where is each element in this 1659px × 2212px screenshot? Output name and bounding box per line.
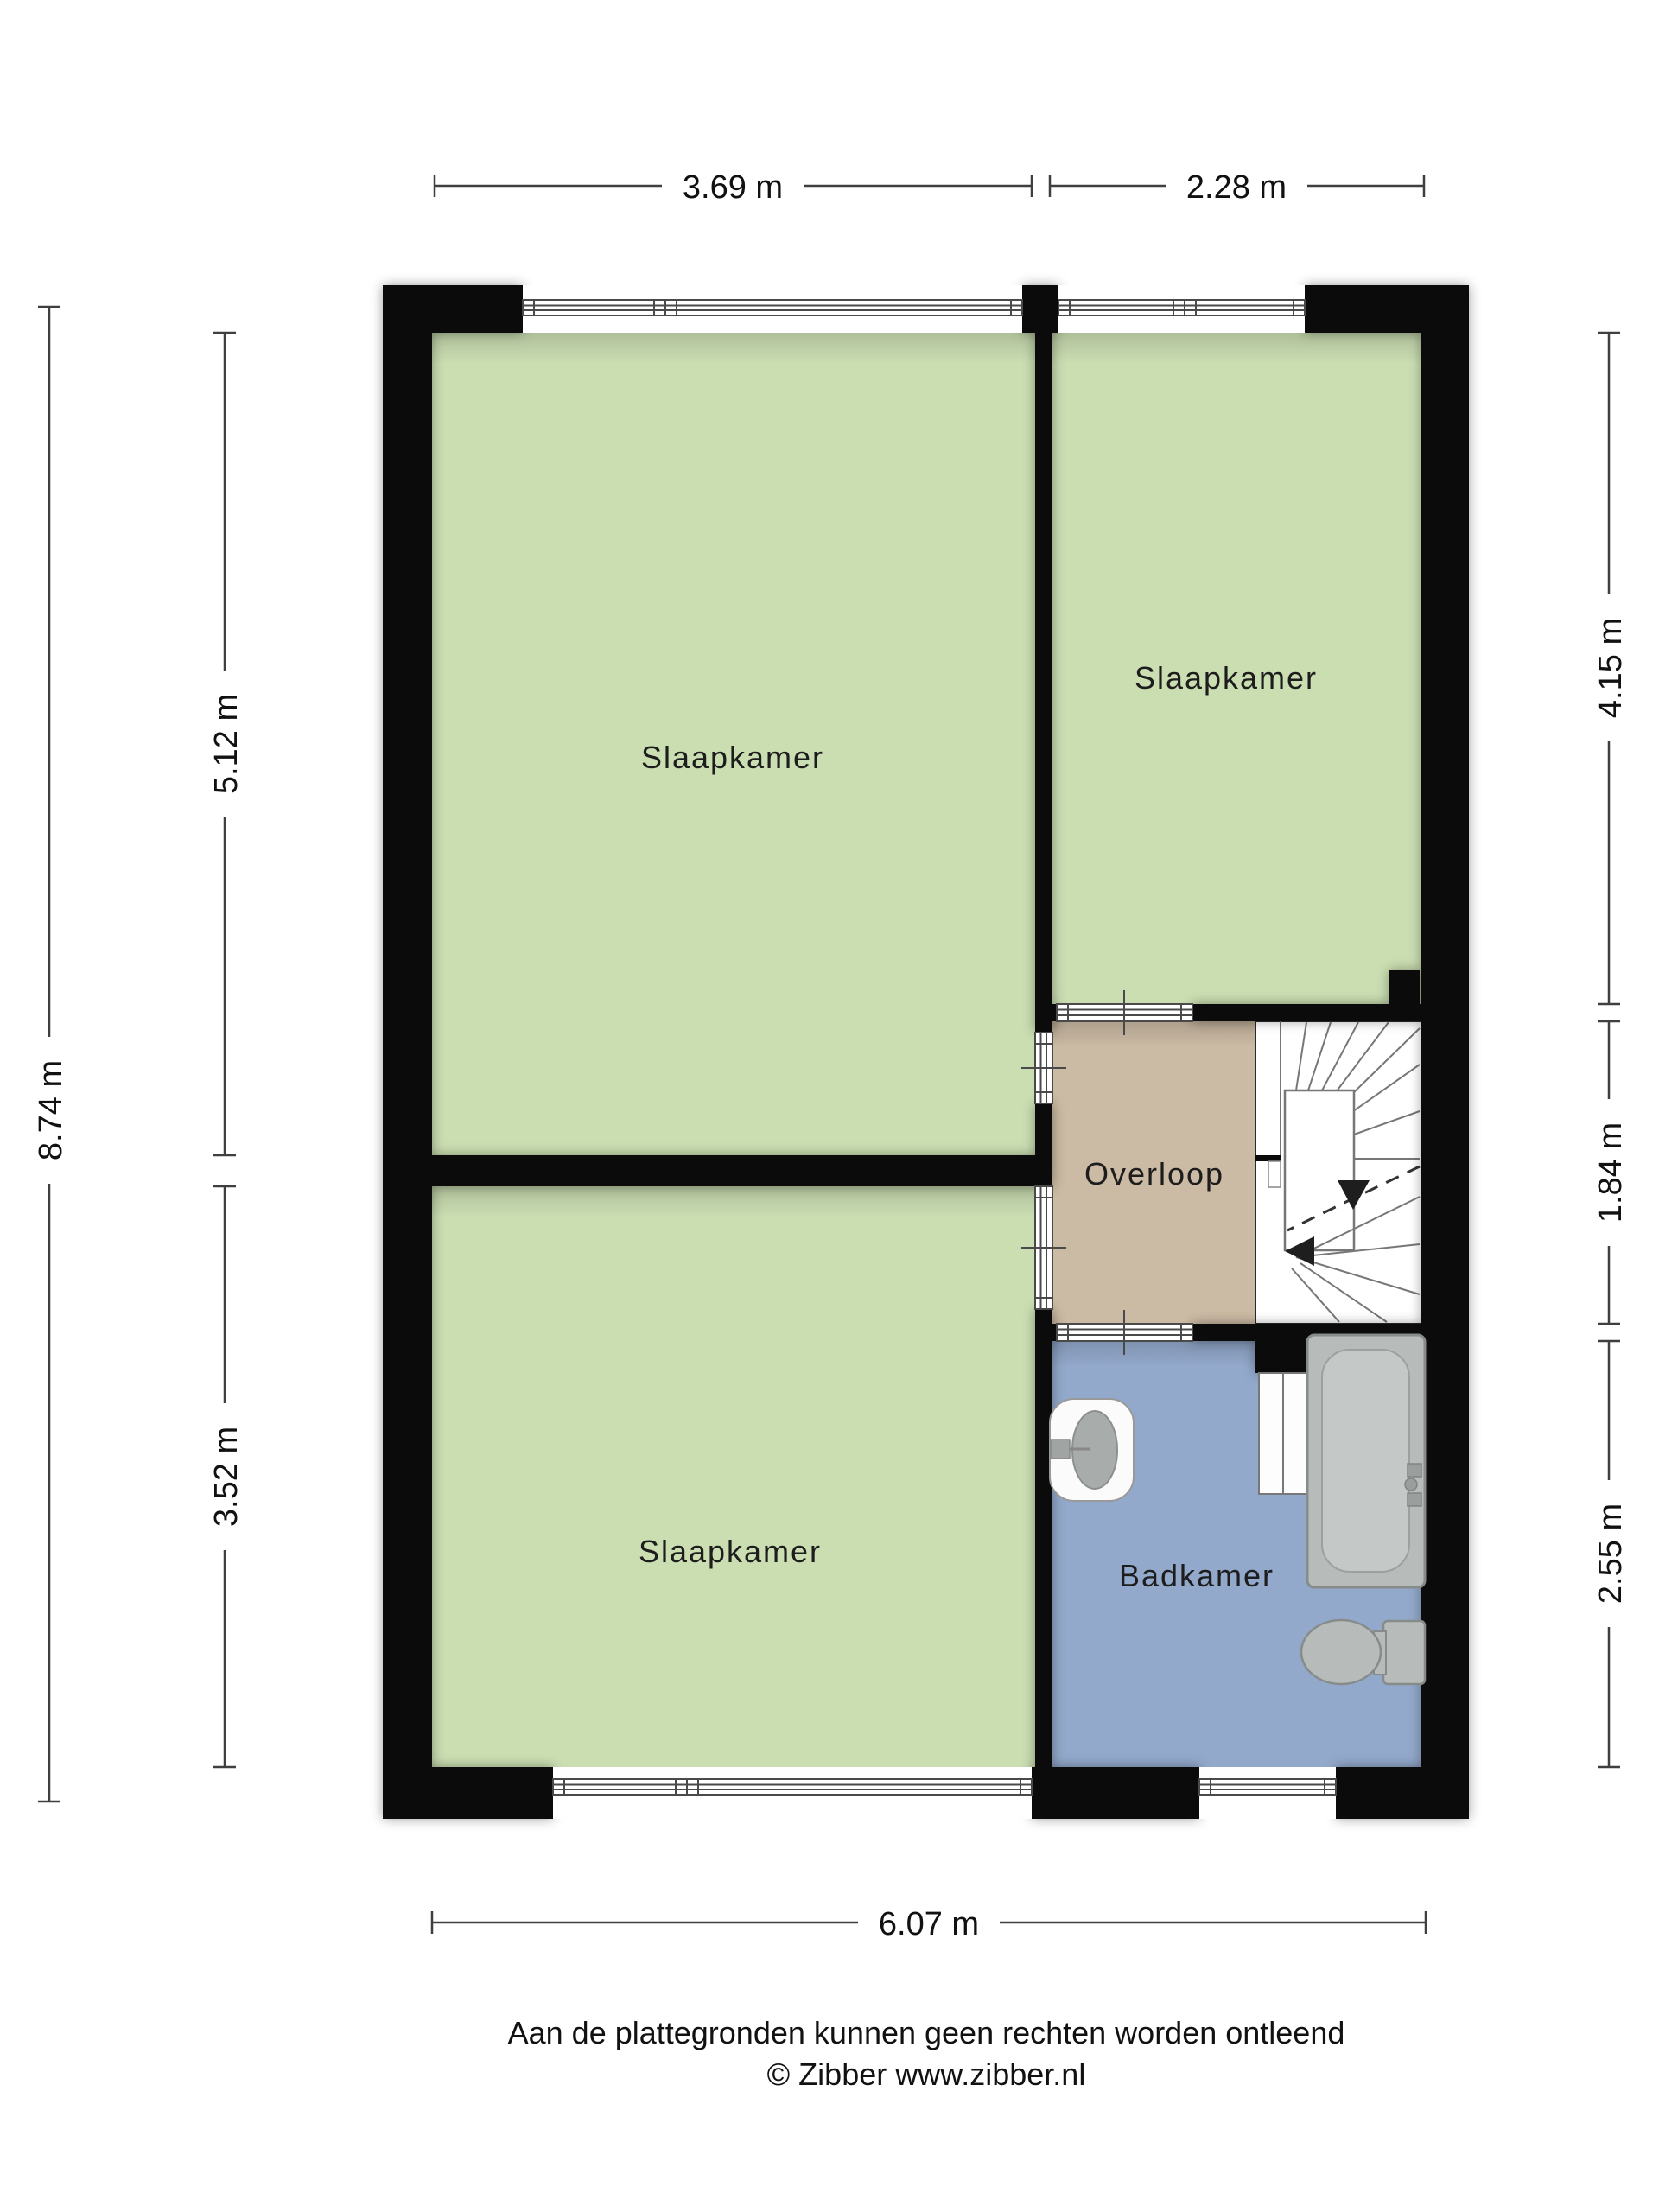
stair-edge-bar	[1255, 1155, 1281, 1161]
room-label: Overloop	[1084, 1156, 1224, 1192]
wall-bottom-corner-left	[383, 1767, 553, 1819]
dim-label: 3.69 m	[683, 169, 783, 206]
dim-label: 3.52 m	[208, 1427, 245, 1527]
wall-bottom-corner-right	[1336, 1767, 1469, 1819]
wall-duct	[1389, 970, 1420, 1004]
wall-between-bedrooms	[432, 1155, 1035, 1186]
room-label: Slaapkamer	[641, 740, 824, 775]
dim-label: 6.07 m	[879, 1906, 979, 1942]
window-top-left	[523, 285, 1022, 333]
bathtub	[1307, 1335, 1425, 1587]
room-floors: Slaapkamer Slaapkamer Slaapkamer Overloo…	[432, 333, 1421, 1767]
wall-top-corner-left	[383, 285, 523, 333]
room-bedroom-bottom-left: Slaapkamer	[432, 1186, 1035, 1767]
room-shading	[1052, 1021, 1255, 1047]
dim-label: 4.15 m	[1592, 618, 1629, 718]
dim-label: 5.12 m	[208, 694, 245, 794]
room-shading	[1052, 333, 1421, 364]
window-bottom-left	[553, 1767, 1032, 1819]
room-label: Badkamer	[1119, 1558, 1274, 1593]
dim-label: 2.55 m	[1592, 1503, 1629, 1604]
footer-disclaimer: Aan de plattegronden kunnen geen rechten…	[508, 2015, 1345, 2050]
wall-under-stairs	[1255, 1324, 1307, 1373]
wall-bottom-middle	[1032, 1767, 1199, 1819]
room-floor	[432, 1186, 1035, 1767]
dim-label: 8.74 m	[33, 1060, 69, 1160]
wall-exterior-left	[383, 285, 432, 1819]
room-landing: Overloop	[1052, 1021, 1255, 1324]
stair-void-box	[1285, 1090, 1354, 1250]
window-top-right	[1058, 285, 1305, 333]
cupboard	[1259, 1373, 1307, 1494]
wall-top-middle	[1022, 285, 1058, 333]
footer-credit: © Zibber www.zibber.nl	[767, 2056, 1086, 2092]
floorplan-drawing: Slaapkamer Slaapkamer Slaapkamer Overloo…	[0, 0, 1659, 2212]
room-label: Slaapkamer	[639, 1534, 822, 1569]
room-shading	[432, 333, 1035, 364]
wall-interior-spine-lower	[1035, 1309, 1052, 1767]
toilet	[1301, 1620, 1425, 1684]
room-bedroom-top-right: Slaapkamer	[1052, 333, 1421, 1004]
wall-exterior-right	[1421, 285, 1469, 1819]
room-label: Slaapkamer	[1135, 660, 1318, 696]
room-shading	[432, 1186, 1035, 1217]
floorplan-page: Slaapkamer Slaapkamer Slaapkamer Overloo…	[0, 0, 1659, 2212]
wall-interior-spine-middle	[1035, 1103, 1052, 1186]
dim-label: 1.84 m	[1592, 1122, 1629, 1223]
room-bedroom-top-left: Slaapkamer	[432, 333, 1035, 1155]
wall-top-corner-right	[1305, 285, 1469, 333]
washbasin	[1050, 1399, 1134, 1501]
stair-newel-post	[1268, 1161, 1281, 1187]
dim-label: 2.28 m	[1186, 169, 1287, 206]
window-bottom-bathroom	[1199, 1767, 1336, 1819]
wall-interior-spine-upper	[1035, 333, 1052, 1033]
wall-landing-top	[1192, 1004, 1421, 1021]
